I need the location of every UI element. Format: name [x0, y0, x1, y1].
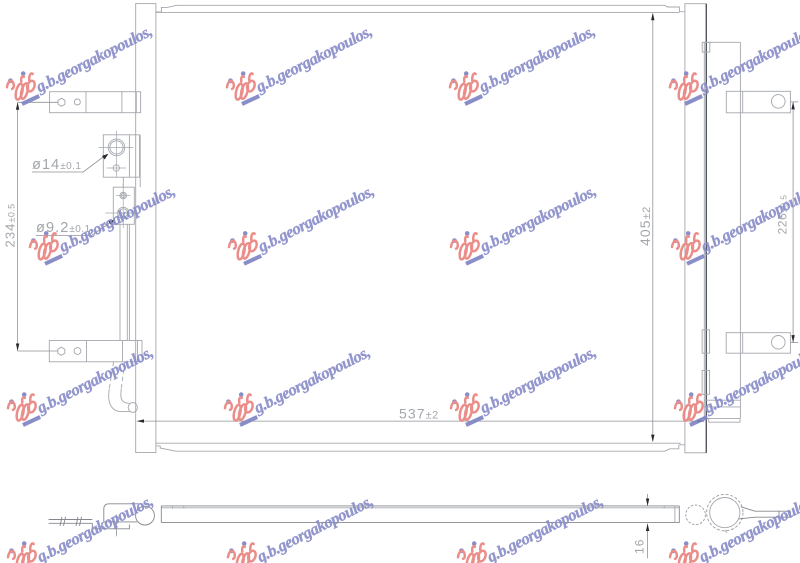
svg-text:g.b.georgakopoulos,: g.b.georgakopoulos, [695, 491, 800, 563]
svg-text:ø14±0.1: ø14±0.1 [32, 157, 81, 173]
svg-text:g.b.georgakopoulos,: g.b.georgakopoulos, [695, 21, 800, 96]
svg-text:g.b.georgakopoulos,: g.b.georgakopoulos, [252, 21, 375, 96]
svg-text:g.b.georgakopoulos,: g.b.georgakopoulos, [253, 491, 376, 563]
svg-text:g.b.georgakopoulos,: g.b.georgakopoulos, [32, 21, 155, 96]
svg-text:g.b.georgakopoulos,: g.b.georgakopoulos, [254, 181, 377, 256]
svg-text:16: 16 [633, 538, 647, 554]
svg-text:537±2: 537±2 [399, 406, 439, 422]
svg-text:g.b.georgakopoulos,: g.b.georgakopoulos, [250, 342, 373, 417]
svg-text:g.b.georgakopoulos,: g.b.georgakopoulos, [476, 342, 599, 417]
svg-text:g.b.georgakopoulos,: g.b.georgakopoulos, [483, 491, 606, 563]
svg-text:g.b.georgakopoulos,: g.b.georgakopoulos, [476, 181, 599, 256]
svg-text:g.b.georgakopoulos,: g.b.georgakopoulos, [475, 21, 598, 96]
svg-text:405±2: 405±2 [637, 206, 653, 246]
svg-text:234±0.5: 234±0.5 [3, 203, 18, 247]
svg-text:g.b.georgakopoulos,: g.b.georgakopoulos, [55, 181, 178, 256]
svg-text:g.b.georgakopoulos,: g.b.georgakopoulos, [33, 491, 156, 563]
